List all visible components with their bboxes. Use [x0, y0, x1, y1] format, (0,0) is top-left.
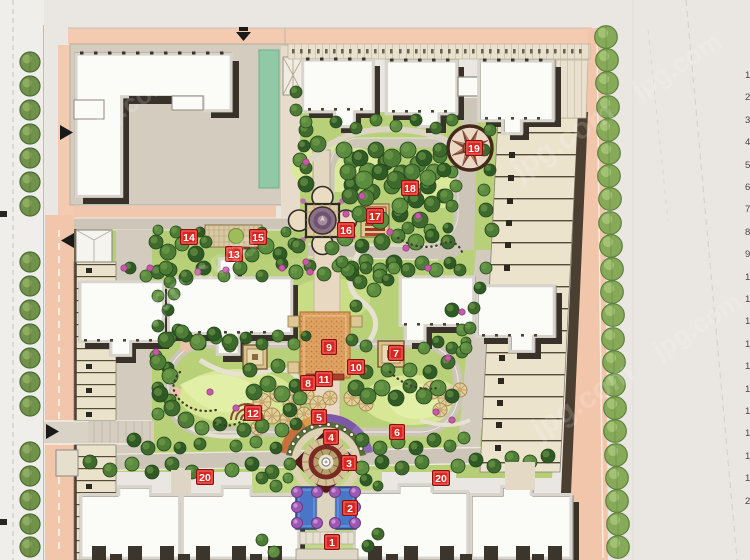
- svg-text:11: 11: [318, 374, 329, 386]
- svg-text:2: 2: [745, 92, 750, 103]
- svg-text:7: 7: [745, 204, 750, 215]
- svg-text:12: 12: [745, 316, 750, 327]
- svg-text:16: 16: [745, 406, 750, 417]
- svg-text:10: 10: [745, 272, 750, 283]
- svg-text:16: 16: [340, 225, 352, 237]
- svg-text:8: 8: [305, 378, 311, 390]
- svg-text:3: 3: [346, 458, 352, 470]
- svg-text:20: 20: [435, 473, 447, 485]
- svg-text:4: 4: [745, 137, 750, 148]
- svg-text:9: 9: [326, 342, 332, 354]
- svg-text:3: 3: [745, 115, 750, 126]
- svg-text:19: 19: [468, 143, 480, 155]
- svg-text:20: 20: [199, 472, 211, 484]
- svg-text:13: 13: [745, 339, 750, 350]
- svg-text:10: 10: [350, 362, 362, 374]
- svg-text:5: 5: [745, 160, 750, 171]
- svg-text:15: 15: [745, 384, 750, 395]
- svg-text:8: 8: [745, 227, 750, 238]
- svg-text:14: 14: [745, 361, 750, 372]
- svg-text:19: 19: [745, 473, 750, 484]
- svg-text:9: 9: [745, 249, 750, 260]
- svg-text:12: 12: [247, 408, 259, 420]
- svg-text:6: 6: [394, 427, 400, 439]
- svg-text:5: 5: [316, 412, 322, 424]
- svg-text:2: 2: [347, 503, 353, 515]
- svg-text:7: 7: [393, 348, 399, 360]
- svg-text:11: 11: [745, 294, 750, 305]
- svg-text:18: 18: [745, 451, 750, 462]
- svg-text:17: 17: [745, 428, 750, 439]
- svg-text:17: 17: [369, 211, 381, 223]
- svg-text:6: 6: [745, 182, 750, 193]
- svg-text:1: 1: [329, 537, 335, 549]
- svg-text:18: 18: [404, 183, 416, 195]
- svg-text:20: 20: [745, 496, 750, 507]
- svg-text:4: 4: [328, 432, 334, 444]
- svg-text:1: 1: [745, 70, 750, 81]
- svg-text:14: 14: [183, 232, 195, 244]
